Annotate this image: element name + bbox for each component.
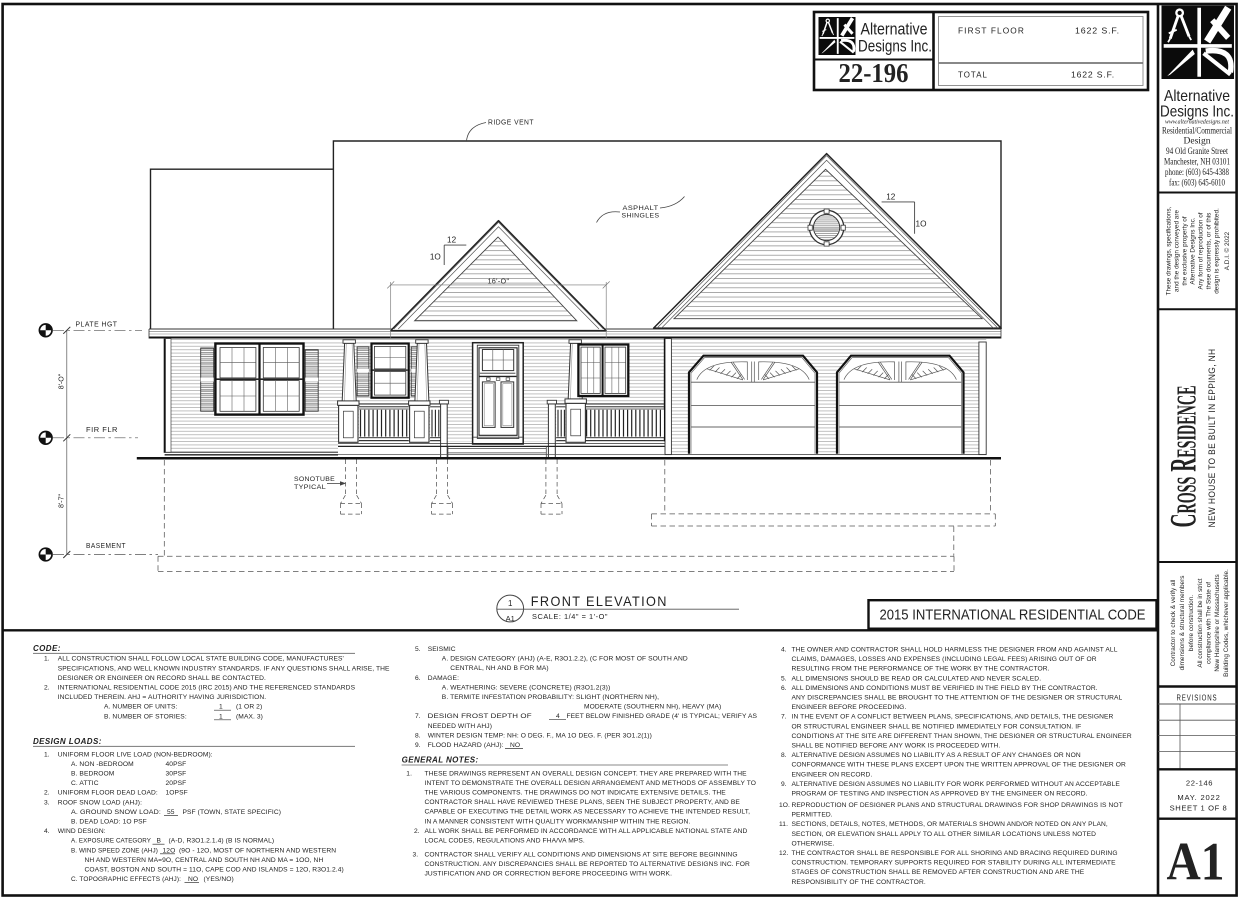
svg-text:C. ATTIC: C. ATTIC [71,780,99,787]
svg-text:IN THE EVENT OF A CONFLICT BET: IN THE EVENT OF A CONFLICT BETWEEN PLANS… [792,714,1114,721]
svg-text:A. EXPOSURE CATEGORY: A. EXPOSURE CATEGORY [71,838,151,845]
svg-text:A.D.I. © 2022: A.D.I. © 2022 [1223,231,1231,270]
svg-text:SCALE: 1/4" = 1'-O": SCALE: 1/4" = 1'-O" [532,614,608,621]
svg-text:New Hampshire or Massachusetts: New Hampshire or Massachusetts [1214,574,1221,671]
svg-text:SECTIONS, DETAILS, NOTES, METH: SECTIONS, DETAILS, NOTES, METHODS, OR MA… [792,821,1108,828]
svg-text:1OPSF: 1OPSF [166,790,188,797]
svg-text:Designs Inc.: Designs Inc. [858,38,932,56]
svg-text:GENERAL NOTES:: GENERAL NOTES: [402,756,479,765]
svg-text:1: 1 [219,713,223,720]
svg-text:B. DEAD LOAD: 1O PSF: B. DEAD LOAD: 1O PSF [71,819,147,826]
svg-text:UNIFORM FLOOR LIVE LOAD (NON-B: UNIFORM FLOOR LIVE LOAD (NON-BEDROOM): [58,751,213,758]
svg-text:CENTRAL, NH AND B FOR MA): CENTRAL, NH AND B FOR MA) [450,665,548,672]
svg-text:DESIGN FROST DEPTH OF: DESIGN FROST DEPTH OF [428,713,532,720]
svg-text:A. NON -BEDROOM: A. NON -BEDROOM [71,761,134,768]
svg-text:B. BEDROOM: B. BEDROOM [71,771,114,778]
svg-text:NEEDED WITH AHJ): NEEDED WITH AHJ) [428,723,492,730]
svg-text:CROSS RESIDENCE: CROSS RESIDENCE [1164,386,1205,528]
svg-text:fax: (603) 645-6010: fax: (603) 645-6010 [1169,178,1225,189]
svg-text:Design: Design [1184,137,1211,147]
svg-text:6.: 6. [415,675,421,682]
svg-text:12: 12 [447,235,457,244]
svg-text:1: 1 [508,599,513,608]
svg-text:B. WIND SPEED ZONE (AHJ): B. WIND SPEED ZONE (AHJ) [71,847,158,854]
svg-text:8'-O": 8'-O" [59,373,66,389]
svg-text:FRONT ELEVATION: FRONT ELEVATION [531,593,668,609]
svg-text:Alternative: Alternative [861,21,928,39]
svg-text:design is expressly prohibited: design is expressly prohibited. [1214,208,1221,294]
svg-text:9.: 9. [781,781,787,788]
svg-text:30PSF: 30PSF [166,771,187,778]
svg-text:BASEMENT: BASEMENT [86,543,126,550]
svg-text:22-146: 22-146 [1186,779,1213,788]
svg-text:PROGRAM OF TESTING AND INSPECT: PROGRAM OF TESTING AND INSPECTION AS APP… [792,791,1088,798]
svg-text:40PSF: 40PSF [166,761,187,768]
svg-text:SHINGLES: SHINGLES [622,213,660,220]
svg-text:CONTRACTOR SHALL VERIFY ALL CO: CONTRACTOR SHALL VERIFY ALL CONDITIONS A… [425,852,738,859]
svg-text:4.: 4. [44,828,50,835]
svg-text:16'-O": 16'-O" [488,278,510,285]
svg-text:STAGES OF CONSTRUCTION SHALL B: STAGES OF CONSTRUCTION SHALL BE REMOVED … [792,869,1085,876]
svg-text:1O: 1O [916,220,927,229]
svg-text:DESIGNER OR ENGINEER ON RECORD: DESIGNER OR ENGINEER ON RECORD SHALL BE … [58,675,266,682]
svg-text:3.: 3. [413,852,419,859]
svg-text:FIR FLR: FIR FLR [86,427,118,434]
svg-text:UNIFORM FLOOR DEAD LOAD:: UNIFORM FLOOR DEAD LOAD: [58,790,158,797]
svg-text:Any form of reproduction of: Any form of reproduction of [1198,212,1205,289]
svg-text:A1: A1 [506,614,515,623]
svg-text:THESE DRAWINGS REPRESENT AN OV: THESE DRAWINGS REPRESENT AN OVERALL DESI… [425,770,748,777]
svg-text:ALL WORK SHALL BE PERFORMED IN: ALL WORK SHALL BE PERFORMED IN ACCORDANC… [425,828,748,835]
svg-text:5.: 5. [781,675,787,682]
svg-text:55: 55 [167,809,175,816]
svg-text:DAMAGE:: DAMAGE: [428,675,459,682]
svg-text:dimensions & structural member: dimensions & structural members [1179,576,1186,671]
svg-text:phone: (603) 645-4388: phone: (603) 645-4388 [1165,167,1229,178]
svg-text:CONDITIONS AT THE SITE ARE DIF: CONDITIONS AT THE SITE ARE DIFFERENT THA… [792,733,1132,740]
svg-text:2.: 2. [414,828,420,835]
svg-text:All construction shall be in s: All construction shall be in strict [1197,578,1204,667]
svg-text:NO: NO [510,742,520,749]
svg-text:1: 1 [219,704,223,711]
svg-text:1O: 1O [430,253,441,262]
svg-text:RESPONSIBILITY OF THE CONTRACT: RESPONSIBILITY OF THE CONTRACTOR. [792,879,926,886]
svg-text:CONFORMANCE WITH THESE PLANS E: CONFORMANCE WITH THESE PLANS EXCEPT UPON… [792,762,1127,769]
svg-text:Contractor to check & verify a: Contractor to check & verify all [1170,580,1177,667]
svg-text:CONSTRUCTION. TEMPORARY SUPPOR: CONSTRUCTION. TEMPORARY SUPPORTS REQUIRE… [792,860,1117,867]
svg-text:SHEET 1 OF 8: SHEET 1 OF 8 [1170,804,1228,813]
svg-text:compliance with The State of: compliance with The State of [1206,582,1213,664]
svg-text:9.: 9. [415,742,421,749]
svg-text:7.: 7. [415,713,421,720]
svg-text:7.: 7. [781,714,787,721]
svg-text:NH AND WESTERN MA=9O, CENTRAL: NH AND WESTERN MA=9O, CENTRAL AND SOUTH … [85,857,324,864]
svg-text:8.: 8. [415,732,421,739]
svg-text:CONSTRUCTION. ANY DISCREPANCI: CONSTRUCTION. ANY DISCREPANCIES SHALL BE… [425,861,751,868]
svg-text:ASPHALT: ASPHALT [623,205,659,212]
svg-text:1.: 1. [44,751,50,758]
svg-text:IN A MANNER CONSISTENT WITH QU: IN A MANNER CONSISTENT WITH QUALITY WORK… [425,818,691,825]
svg-text:Manchester, NH 03101: Manchester, NH 03101 [1164,158,1230,168]
svg-text:1O.: 1O. [779,802,790,809]
svg-text:SECTION, OR ELEVATION SHALL AP: SECTION, OR ELEVATION SHALL APPLY TO ALL… [792,831,1097,838]
svg-text:A. NUMBER OF UNITS:: A. NUMBER OF UNITS: [104,704,178,711]
svg-text:SHALL BE NOTIFIED BEFORE ANY W: SHALL BE NOTIFIED BEFORE ANY WORK IS PRO… [792,743,1001,750]
svg-text:CODE:: CODE: [33,644,61,653]
svg-text:1.: 1. [406,770,412,777]
svg-text:FIRST FLOOR: FIRST FLOOR [958,27,1025,36]
svg-text:SPECIFICATIONS, AND WELL KNOWN: SPECIFICATIONS, AND WELL KNOWN INDUSTRY … [58,665,390,672]
svg-text:3.: 3. [44,799,50,806]
svg-text:A1: A1 [1167,832,1225,892]
svg-text:1622 S.F.: 1622 S.F. [1075,27,1120,36]
svg-text:Residential/Commercial: Residential/Commercial [1162,127,1232,137]
svg-text:CAPABLE OF EXECUTING THE DETAI: CAPABLE OF EXECUTING THE DETAIL WORK AS … [425,809,751,816]
svg-text:www.alternativedesigns.net: www.alternativedesigns.net [1165,120,1229,126]
svg-text:THE CONTRACTOR SHALL BE RESPON: THE CONTRACTOR SHALL BE RESPONSIBLE FOR … [792,850,1118,857]
svg-text:WINTER DESIGN TEMP: NH: O DE: WINTER DESIGN TEMP: NH: O DEG. F., MA 1O… [428,732,652,739]
svg-text:1.: 1. [44,656,50,663]
svg-text:THE OWNER AND CONTRACTOR SHALL: THE OWNER AND CONTRACTOR SHALL HOLD HARM… [792,647,1118,654]
svg-text:SONOTUBE: SONOTUBE [294,476,335,483]
svg-text:RIDGE VENT: RIDGE VENT [488,120,534,127]
svg-text:REPRODUCTION OF DESIGNER PLANS: REPRODUCTION OF DESIGNER PLANS AND STRUC… [792,802,1123,809]
svg-text:B: B [157,838,162,845]
svg-text:(1 OR 2): (1 OR 2) [236,704,262,711]
svg-text:B. TERMITE INFESTATION PROBAB: B. TERMITE INFESTATION PROBABILITY: SLIG… [442,694,659,701]
svg-text:A. WEATHERING: SEVERE (CONC: A. WEATHERING: SEVERE (CONCRETE) (R3O1.2… [442,684,610,691]
svg-text:before construction.: before construction. [1188,595,1195,651]
svg-text:22-196: 22-196 [839,58,909,88]
svg-text:20PSF: 20PSF [166,780,187,787]
svg-text:INCLUDED THEREIN. AHJ = AUTHO: INCLUDED THEREIN. AHJ = AUTHORITY HAVING… [58,694,267,701]
svg-text:C. TOPOGRAPHIC EFFECTS (AHJ):: C. TOPOGRAPHIC EFFECTS (AHJ): [71,876,181,883]
svg-text:MAY. 2022: MAY. 2022 [1177,793,1220,802]
svg-text:(MAX. 3): (MAX. 3) [236,713,263,720]
svg-text:OTHERWISE.: OTHERWISE. [792,840,835,847]
svg-text:(YES/NO): (YES/NO) [204,876,234,883]
svg-text:TYPICAL: TYPICAL [294,484,326,491]
svg-text:these documents, or of this: these documents, or of this [1206,213,1213,290]
svg-text:Alternative: Alternative [1164,88,1230,105]
svg-text:Building Codes, whichever appl: Building Codes, whichever applicable. [1223,569,1230,677]
svg-text:94 Old Granite Street: 94 Old Granite Street [1166,147,1228,157]
svg-text:LOCAL CODES, REGULATIONS AND F: LOCAL CODES, REGULATIONS AND FHA/VA MPS. [425,838,585,845]
svg-text:12O: 12O [163,847,176,854]
svg-text:8'-7": 8'-7" [59,494,66,508]
svg-text:and the design conveyed are: and the design conveyed are [1174,210,1181,293]
svg-text:DESIGN LOADS:: DESIGN LOADS: [33,737,102,746]
svg-text:4.: 4. [781,647,787,654]
svg-text:B. NUMBER OF STORIES:: B. NUMBER OF STORIES: [104,713,187,720]
svg-text:MODERATE (SOUTHERN NH), HEAVY: MODERATE (SOUTHERN NH), HEAVY (MA) [584,704,721,711]
svg-text:ENGINEER BEFORE PROCEEDING.: ENGINEER BEFORE PROCEEDING. [792,704,907,711]
svg-text:11.: 11. [779,821,788,828]
svg-text:(A-D, R3O1.2.1.4) (B IS NORMA: (A-D, R3O1.2.1.4) (B IS NORMAL) [169,838,275,845]
svg-text:ALTERNATIVE DESIGN ASSUMES NO: ALTERNATIVE DESIGN ASSUMES NO LIABILITY … [792,752,1081,759]
svg-text:These drawings, specifications: These drawings, specifications, [1166,206,1173,295]
svg-text:CLAIMS, DAMAGES, LOSSES AND EX: CLAIMS, DAMAGES, LOSSES AND EXPENSES (IN… [792,656,1097,663]
svg-text:RESULTING FROM THE PERFORMANCE: RESULTING FROM THE PERFORMANCE OF THE WO… [792,666,1050,673]
svg-text:8.: 8. [781,752,787,759]
svg-text:NO: NO [188,876,198,883]
svg-text:PSF (TOWN, STATE SPECIFIC): PSF (TOWN, STATE SPECIFIC) [183,809,282,816]
svg-text:the exclusive property of: the exclusive property of [1182,216,1189,285]
svg-text:ALL DIMENSIONS SHOULD BE READ: ALL DIMENSIONS SHOULD BE READ OR CALCULA… [792,675,1042,682]
svg-text:Designs Inc.: Designs Inc. [1160,104,1234,121]
svg-text:(9O - 12O, MOST OF NORTHERN AN: (9O - 12O, MOST OF NORTHERN AND WESTERN [179,847,336,854]
svg-text:A. GROUND SNOW LOAD:: A. GROUND SNOW LOAD: [71,809,161,816]
svg-text:A. DESIGN CATEGORY (AHJ) (A-E: A. DESIGN CATEGORY (AHJ) (A-E, R3O1.2.2)… [442,656,688,663]
svg-text:Alternative Designs Inc.: Alternative Designs Inc. [1190,217,1197,284]
svg-text:THE VARIOUS COMPONENTS. THE D: THE VARIOUS COMPONENTS. THE DRAWINGS DO … [425,790,727,797]
svg-text:NEW HOUSE TO BE BUILT IN EPPIN: NEW HOUSE TO BE BUILT IN EPPING, NH [1207,349,1217,528]
svg-text:5.: 5. [415,646,421,653]
svg-text:6.: 6. [781,685,787,692]
svg-text:2.: 2. [44,685,50,692]
svg-text:ENGINEER ON RECORD.: ENGINEER ON RECORD. [792,771,873,778]
svg-text:4: 4 [556,713,560,720]
svg-text:ROOF SNOW LOAD (AHJ):: ROOF SNOW LOAD (AHJ): [58,799,142,806]
svg-text:FLOOD HAZARD (AHJ):: FLOOD HAZARD (AHJ): [428,742,504,749]
svg-text:OR STRUCTURAL ENGINEER SHALL B: OR STRUCTURAL ENGINEER SHALL BE NOTIFIED… [792,723,1082,730]
svg-text:REVISIONS: REVISIONS [1177,693,1218,703]
svg-text:JUSTIFICATION AND OR CORRECTIO: JUSTIFICATION AND OR CORRECTION BEFORE P… [425,871,673,878]
svg-text:COAST, BOSTON AND SOUTH = 11O,: COAST, BOSTON AND SOUTH = 11O, CAPE COD … [85,867,344,874]
svg-text:ANY DISCREPANCIES SHALL BE BRO: ANY DISCREPANCIES SHALL BE BROUGHT TO TH… [792,695,1123,702]
svg-text:PERMITTED.: PERMITTED. [792,812,833,819]
svg-text:WIND DESIGN:: WIND DESIGN: [58,828,106,835]
svg-text:1622 S.F.: 1622 S.F. [1071,71,1115,80]
svg-text:PLATE HGT: PLATE HGT [76,322,118,329]
svg-text:ALL CONSTRUCTION SHALL FOLLOW: ALL CONSTRUCTION SHALL FOLLOW LOCAL STAT… [58,656,344,663]
svg-text:12.: 12. [779,850,789,857]
svg-text:ALL DIMENSIONS AND CONDITIONS: ALL DIMENSIONS AND CONDITIONS MUST BE VE… [792,685,1098,692]
svg-text:ALTERNATIVE DESIGN ASSUMES NO: ALTERNATIVE DESIGN ASSUMES NO LIABILITY … [792,781,1121,788]
svg-text:INTENT TO DEMONSTRATE THE OVER: INTENT TO DEMONSTRATE THE OVERALL DESIGN… [425,780,757,787]
svg-text:FEET BELOW FINISHED GRADE (4': FEET BELOW FINISHED GRADE (4' IS TYPICAL… [567,713,758,720]
svg-text:INTERNATIONAL RESIDENTIAL CODE: INTERNATIONAL RESIDENTIAL CODE 2015 (IRC… [58,685,356,692]
svg-text:CONTRACTOR SHALL HAVE REVIEWED: CONTRACTOR SHALL HAVE REVIEWED THESE PLA… [425,799,741,806]
svg-text:2015 INTERNATIONAL RESIDENTIAL: 2015 INTERNATIONAL RESIDENTIAL CODE [880,608,1146,624]
svg-text:12: 12 [886,193,896,202]
svg-text:SEISMIC: SEISMIC [428,646,456,653]
svg-text:TOTAL: TOTAL [958,71,988,80]
svg-text:2.: 2. [44,790,50,797]
